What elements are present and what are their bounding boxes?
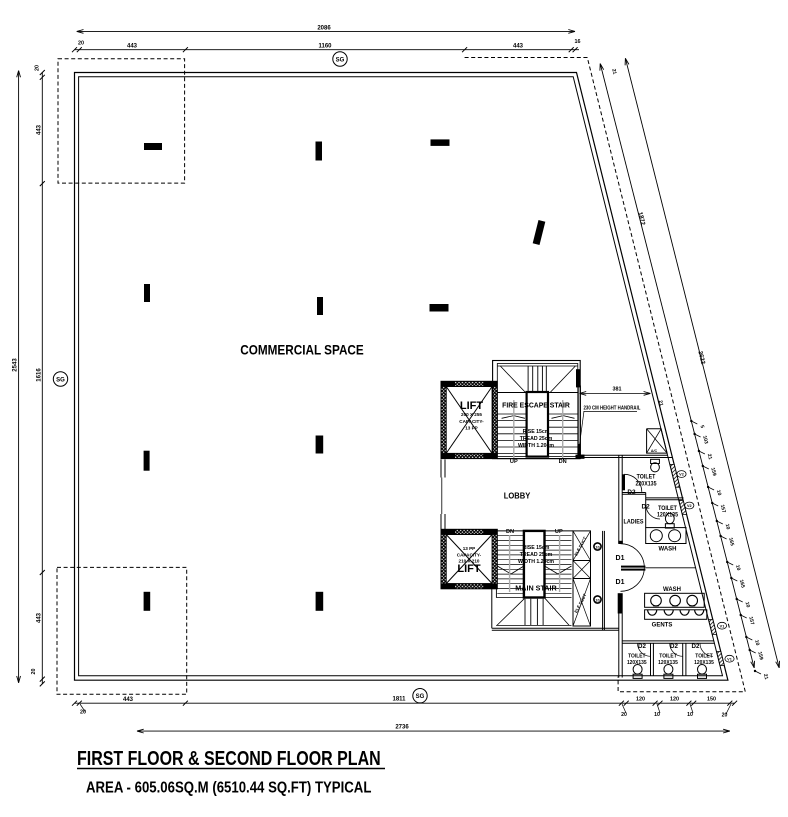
svg-text:LIFT: LIFT [457, 563, 480, 575]
svg-text:16: 16 [575, 39, 581, 45]
svg-text:TOILET: TOILET [658, 506, 677, 512]
svg-text:443: 443 [123, 697, 134, 703]
svg-text:120X135: 120X135 [658, 660, 678, 666]
svg-text:20: 20 [35, 65, 41, 71]
svg-text:GENTS: GENTS [652, 623, 673, 629]
svg-text:10: 10 [687, 712, 693, 718]
svg-text:WASH: WASH [659, 546, 677, 552]
svg-text:RISE 15cm: RISE 15cm [523, 545, 550, 551]
svg-text:LOBBY: LOBBY [504, 491, 531, 500]
svg-text:1160: 1160 [318, 44, 332, 50]
svg-text:381: 381 [613, 386, 622, 392]
svg-text:WASH: WASH [663, 587, 681, 593]
svg-text:120X135: 120X135 [657, 512, 678, 518]
svg-text:V1: V1 [720, 624, 725, 628]
svg-text:443: 443 [36, 124, 42, 135]
svg-text:D2: D2 [642, 504, 651, 511]
svg-text:120X135: 120X135 [627, 660, 647, 666]
svg-text:D2: D2 [692, 643, 700, 650]
svg-text:13 PP: 13 PP [463, 546, 476, 551]
svg-text:FIRE ESCAPE STAIR: FIRE ESCAPE STAIR [502, 401, 570, 409]
svg-text:2736: 2736 [395, 724, 409, 730]
svg-text:120: 120 [670, 697, 679, 703]
svg-text:TREAD 25cm: TREAD 25cm [520, 552, 553, 558]
svg-text:FIRST FLOOR & SECOND FLOOR PLA: FIRST FLOOR & SECOND FLOOR PLAN [77, 746, 381, 769]
svg-text:V1: V1 [727, 657, 732, 661]
svg-text:20: 20 [80, 710, 86, 716]
svg-text:MAIN STAIR: MAIN STAIR [515, 584, 557, 593]
svg-text:10: 10 [595, 598, 599, 602]
svg-text:UP: UP [555, 529, 563, 535]
svg-text:1811: 1811 [392, 697, 406, 703]
svg-text:200 X 255: 200 X 255 [461, 412, 482, 417]
svg-text:1616: 1616 [36, 368, 42, 382]
svg-text:V2: V2 [679, 473, 684, 477]
svg-text:10: 10 [595, 545, 599, 549]
svg-text:LADIES: LADIES [624, 519, 644, 525]
svg-text:RISE 15cm: RISE 15cm [523, 429, 550, 435]
svg-text:LIFT: LIFT [460, 400, 483, 412]
svg-text:443: 443 [127, 44, 138, 50]
svg-text:AREA - 605.06SQ.M (6510.44 SQ.: AREA - 605.06SQ.M (6510.44 SQ.FT) TYPICA… [86, 780, 371, 797]
svg-text:150: 150 [707, 697, 716, 703]
svg-text:SG: SG [416, 694, 425, 700]
svg-text:WIDTH 1.20cm: WIDTH 1.20cm [518, 559, 554, 565]
svg-text:COMMERCIAL SPACE: COMMERCIAL SPACE [240, 343, 363, 358]
svg-text:20: 20 [78, 41, 84, 47]
svg-text:CAPACITY-: CAPACITY- [459, 419, 484, 424]
svg-text:443: 443 [36, 612, 42, 623]
svg-text:D1: D1 [616, 555, 625, 562]
svg-text:20: 20 [31, 669, 37, 675]
svg-text:D2: D2 [627, 489, 636, 496]
svg-text:D2: D2 [638, 643, 646, 650]
svg-text:WIDTH 1.20cm: WIDTH 1.20cm [518, 443, 554, 449]
svg-text:10: 10 [654, 712, 660, 718]
svg-text:2543: 2543 [13, 358, 19, 372]
svg-text:SG: SG [56, 377, 65, 383]
svg-text:DN: DN [506, 529, 514, 535]
svg-text:TOILET: TOILET [637, 474, 656, 480]
svg-text:230 CM HEIGHT HANDRAIL: 230 CM HEIGHT HANDRAIL [584, 405, 641, 412]
svg-text:13 PP: 13 PP [465, 425, 478, 430]
svg-text:TREAD 25cm: TREAD 25cm [520, 436, 553, 442]
svg-text:A/C: A/C [651, 449, 658, 453]
svg-text:CAPACITY-: CAPACITY- [457, 552, 482, 557]
svg-text:2086: 2086 [317, 25, 331, 31]
svg-text:UP: UP [510, 459, 518, 465]
svg-text:SG: SG [336, 57, 345, 63]
svg-text:120X135: 120X135 [694, 660, 714, 666]
svg-text:DN: DN [559, 459, 567, 465]
svg-text:120: 120 [636, 697, 645, 703]
svg-text:443: 443 [513, 44, 524, 50]
svg-text:220X135: 220X135 [635, 481, 656, 487]
svg-text:V2: V2 [687, 504, 692, 508]
svg-text:D1: D1 [616, 579, 625, 586]
